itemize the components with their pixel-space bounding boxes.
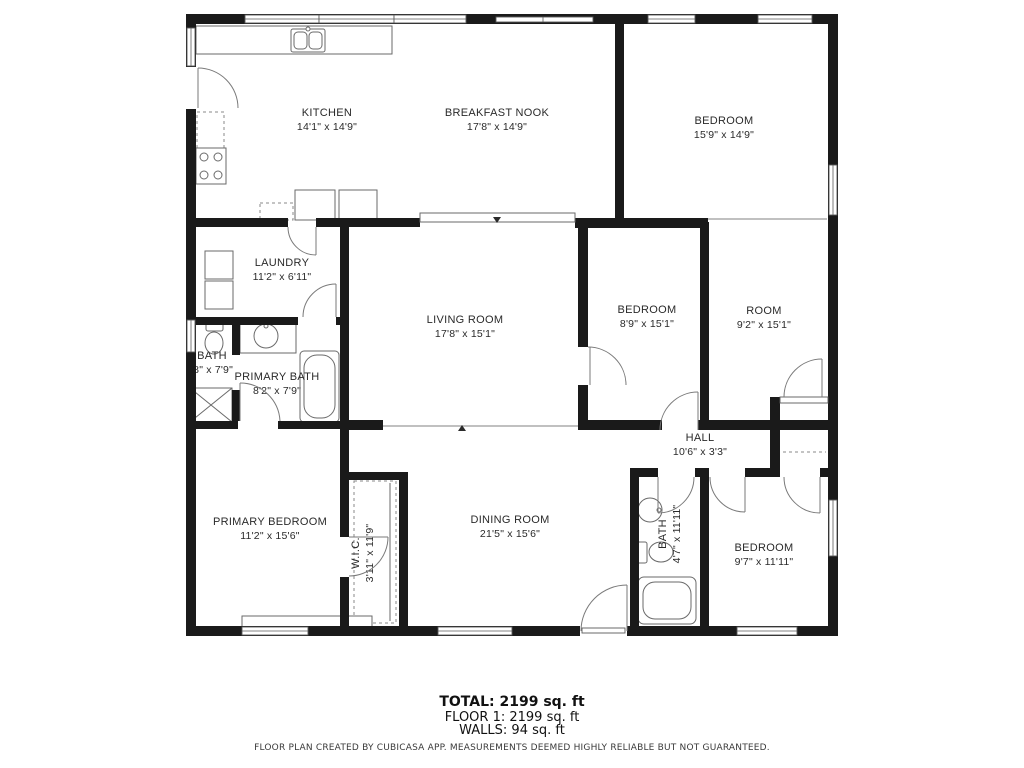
room-label-bedroom-bottom: BEDROOM 9'7" x 11'11" xyxy=(735,541,794,569)
room-label-breakfast-nook: BREAKFAST NOOK 17'8" x 14'9" xyxy=(445,106,549,134)
room-label-primary-bath: PRIMARY BATH 8'2" x 7'9" xyxy=(235,370,320,398)
room-label-room: ROOM 9'2" x 15'1" xyxy=(737,304,791,332)
room-label-bath-small: BATH '8" x 7'9" xyxy=(191,349,233,377)
room-label-kitchen: KITCHEN 14'1" x 14'9" xyxy=(297,106,357,134)
room-label-laundry: LAUNDRY 11'2" x 6'11" xyxy=(253,256,312,284)
walls-area-text: WALLS: 94 sq. ft xyxy=(0,723,1024,738)
floor-plan-page: KITCHEN 14'1" x 14'9" BREAKFAST NOOK 17'… xyxy=(0,0,1024,768)
disclaimer-text: FLOOR PLAN CREATED BY CUBICASA APP. MEAS… xyxy=(0,743,1024,753)
labels-layer: KITCHEN 14'1" x 14'9" BREAKFAST NOOK 17'… xyxy=(0,0,1024,768)
room-label-bath-bottom: BATH 4'7" x 11'11" xyxy=(656,505,684,564)
room-label-dining-room: DINING ROOM 21'5" x 15'6" xyxy=(470,513,549,541)
room-label-wic: W.I.C. 3'11" x 11'9" xyxy=(349,524,377,583)
total-area-text: TOTAL: 2199 sq. ft xyxy=(0,694,1024,710)
room-label-bedroom-middle: BEDROOM 8'9" x 15'1" xyxy=(618,303,677,331)
room-label-bedroom-top: BEDROOM 15'9" x 14'9" xyxy=(694,114,754,142)
room-label-hall: HALL 10'6" x 3'3" xyxy=(673,431,727,459)
room-label-living-room: LIVING ROOM 17'8" x 15'1" xyxy=(427,313,504,341)
room-label-primary-bedroom: PRIMARY BEDROOM 11'2" x 15'6" xyxy=(213,515,327,543)
